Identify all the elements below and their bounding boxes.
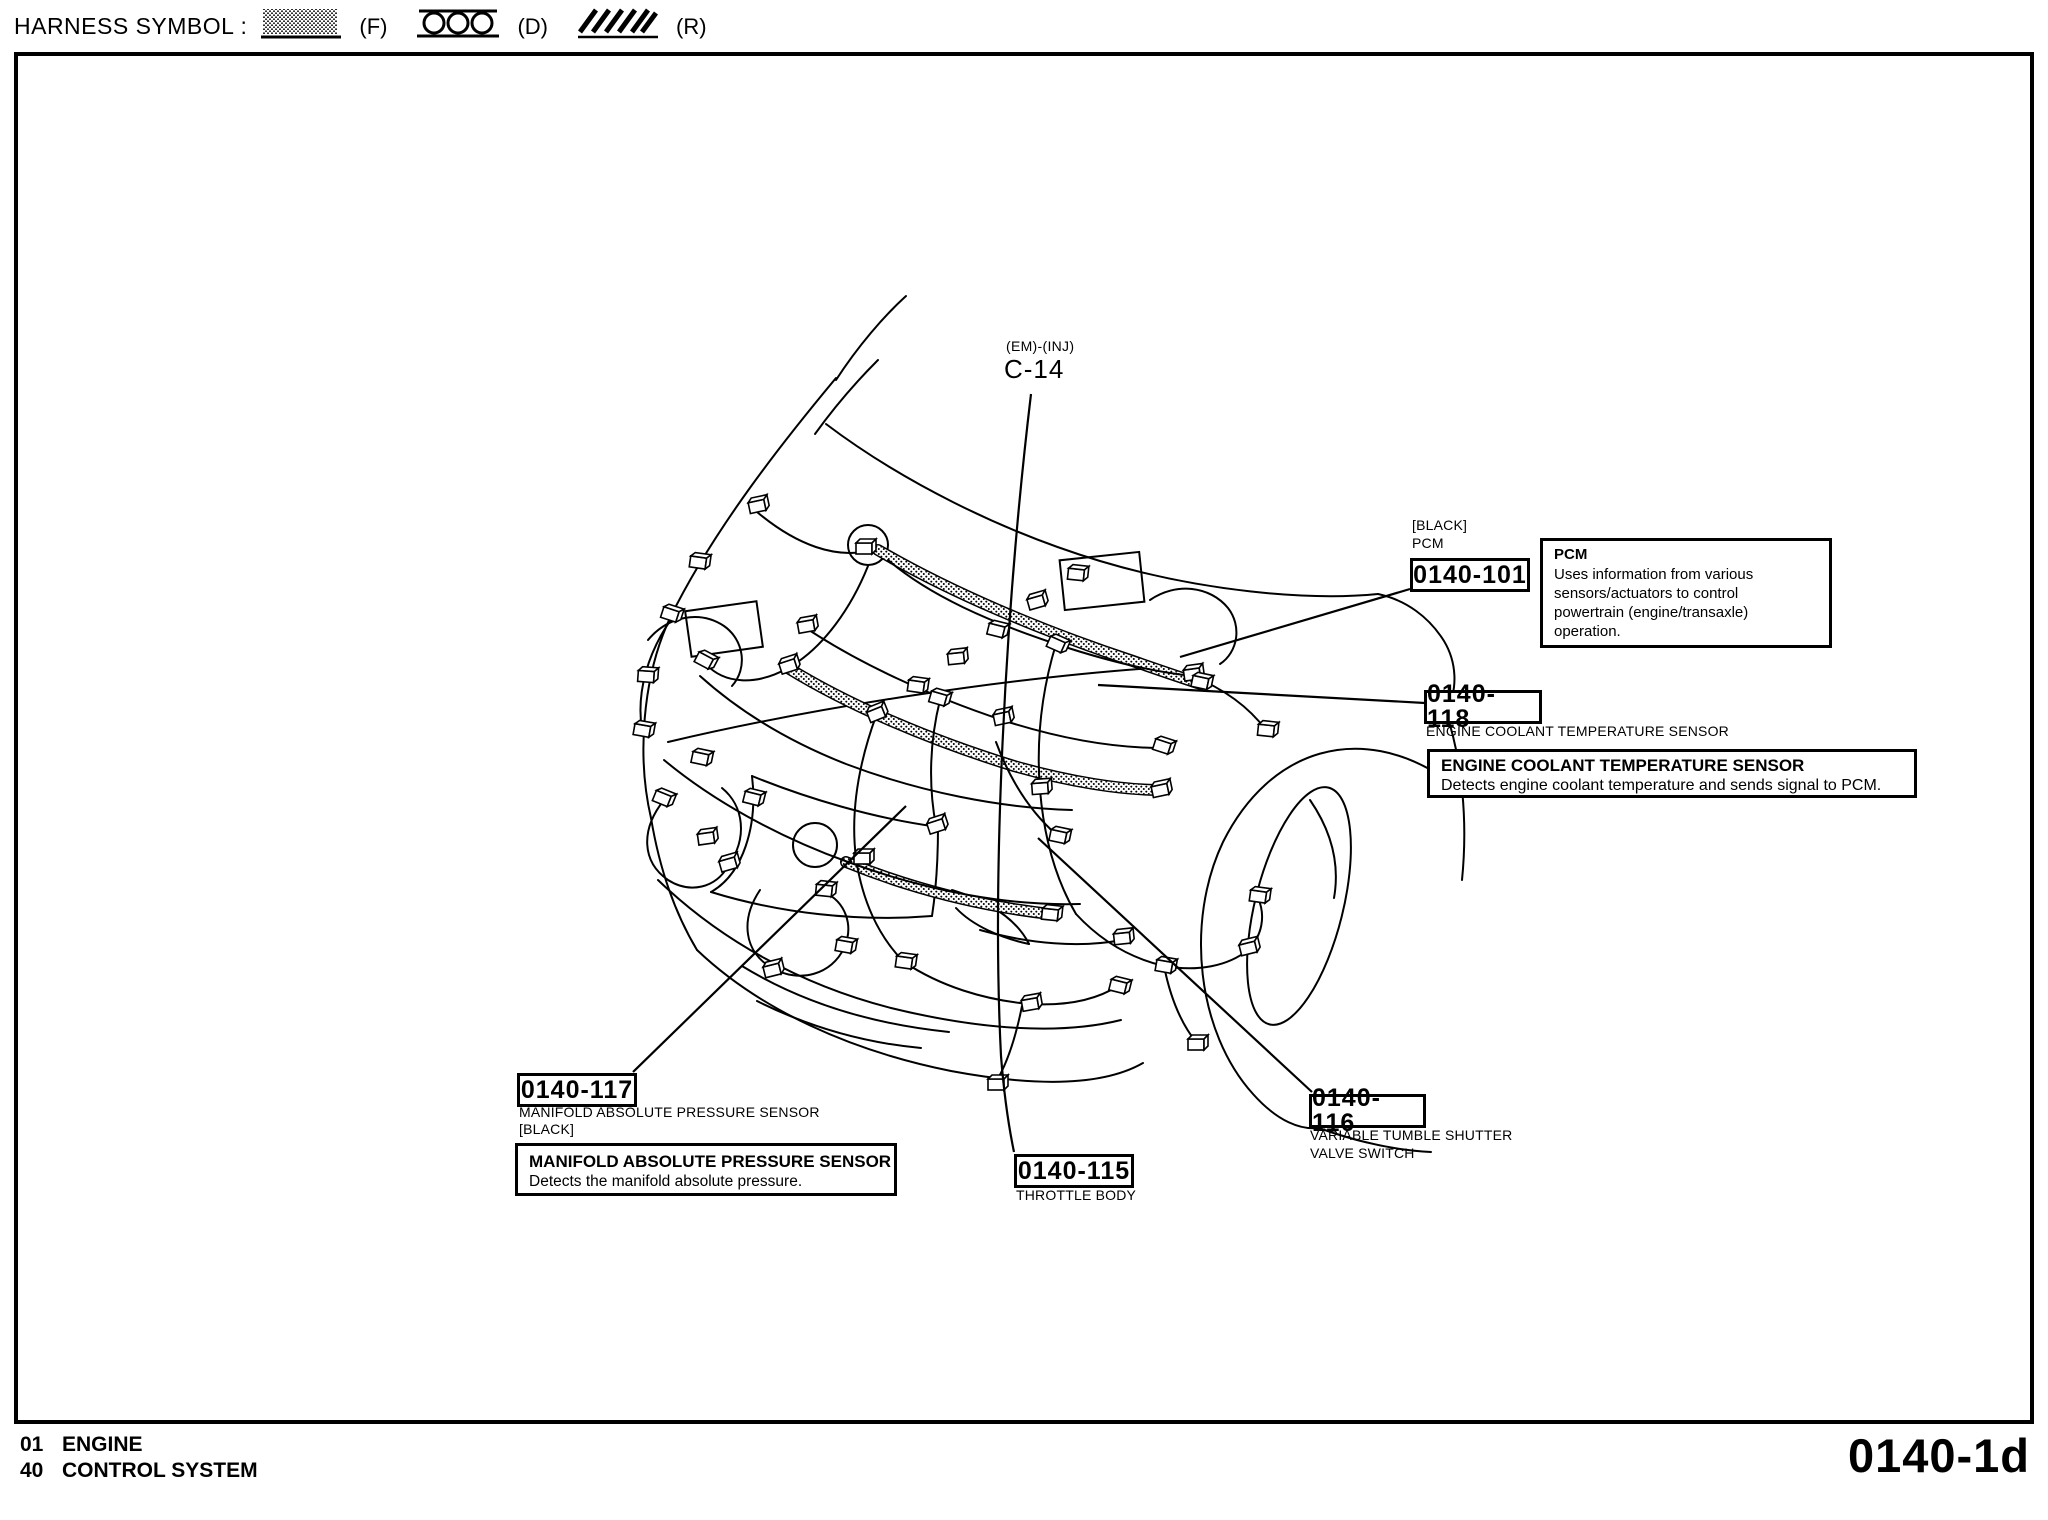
harness-pattern-d-icon <box>417 6 499 47</box>
pcm-color-note: [BLACK] <box>1412 517 1467 533</box>
pcm-info-title: PCM <box>1554 546 1818 563</box>
ect-label: ENGINE COOLANT TEMPERATURE SENSOR <box>1426 723 1729 739</box>
diagram-frame <box>14 52 2034 1424</box>
vts-label-line1: VARIABLE TUMBLE SHUTTER <box>1310 1127 1512 1143</box>
map-info-box: MANIFOLD ABSOLUTE PRESSURE SENSOR Detect… <box>515 1143 897 1196</box>
map-info-body: Detects the manifold absolute pressure. <box>529 1172 883 1192</box>
map-label: MANIFOLD ABSOLUTE PRESSURE SENSOR <box>519 1104 820 1120</box>
pcm-info-line: Uses information from various <box>1554 565 1818 584</box>
section-name: ENGINE <box>62 1433 143 1456</box>
pcm-code-box: 0140-101 <box>1410 558 1530 592</box>
ect-info-title: ENGINE COOLANT TEMPERATURE SENSOR <box>1441 755 1903 776</box>
ect-code-box: 0140-118 <box>1424 690 1542 724</box>
ect-info-box: ENGINE COOLANT TEMPERATURE SENSOR Detect… <box>1427 749 1917 798</box>
service-manual-page: HARNESS SYMBOL : (F) (D) <box>0 0 2048 1520</box>
ect-info-body: Detects engine coolant temperature and s… <box>1441 776 1903 796</box>
connector-code: C-14 <box>1004 354 1064 385</box>
harness-pattern-r-icon <box>578 6 658 47</box>
pcm-info-line: operation. <box>1554 622 1818 641</box>
harness-symbol-label: HARNESS SYMBOL : <box>14 13 247 40</box>
footer-row: 40CONTROL SYSTEM <box>20 1458 258 1484</box>
pcm-info-line: sensors/actuators to control <box>1554 584 1818 603</box>
harness-symbol-legend: HARNESS SYMBOL : (F) (D) <box>14 6 707 47</box>
map-color-note: [BLACK] <box>519 1121 574 1137</box>
throttle-body-code-box: 0140-115 <box>1014 1154 1134 1188</box>
throttle-body-label: THROTTLE BODY <box>1016 1187 1136 1203</box>
footer-row: 01ENGINE <box>20 1432 258 1458</box>
vts-label-line2: VALVE SWITCH <box>1310 1145 1415 1161</box>
connector-harness-ref: (EM)-(INJ) <box>1006 338 1074 354</box>
group-name: CONTROL SYSTEM <box>62 1459 258 1482</box>
pcm-info-box: PCM Uses information from various sensor… <box>1540 538 1832 648</box>
pcm-name-label: PCM <box>1412 535 1444 551</box>
page-id: 0140-1d <box>1848 1428 2030 1483</box>
harness-pattern-f-icon <box>261 6 341 47</box>
harness-pattern-d-label: (D) <box>517 14 548 40</box>
harness-pattern-r-label: (R) <box>676 14 707 40</box>
map-code-box: 0140-117 <box>517 1073 637 1107</box>
pcm-info-line: powertrain (engine/transaxle) <box>1554 603 1818 622</box>
group-code: 40 <box>20 1458 62 1484</box>
footer-section-info: 01ENGINE 40CONTROL SYSTEM <box>20 1432 258 1484</box>
map-info-title: MANIFOLD ABSOLUTE PRESSURE SENSOR <box>529 1151 883 1172</box>
section-code: 01 <box>20 1432 62 1458</box>
harness-pattern-f-label: (F) <box>359 14 387 40</box>
vts-code-box: 0140-116 <box>1309 1094 1426 1128</box>
